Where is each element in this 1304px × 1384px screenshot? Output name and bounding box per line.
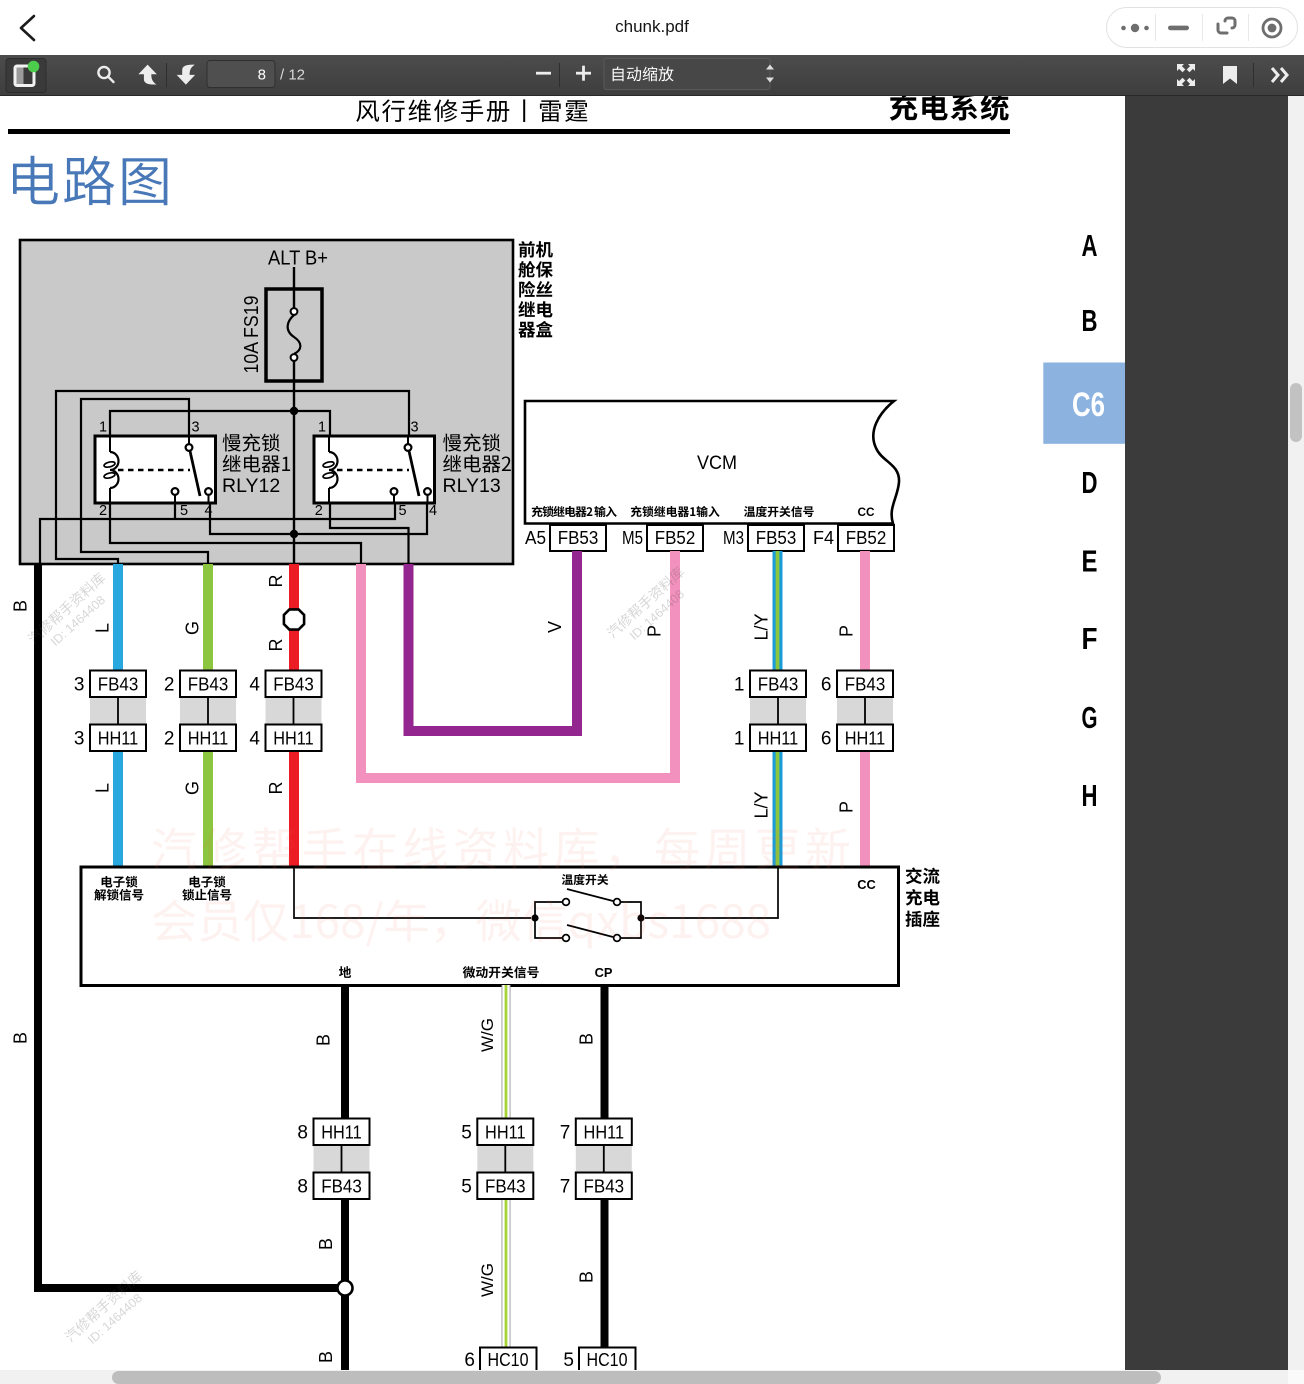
svg-text:FB43: FB43 bbox=[584, 1176, 625, 1197]
svg-text:E: E bbox=[1082, 544, 1098, 579]
svg-text:5: 5 bbox=[398, 503, 406, 519]
svg-text:L/Y: L/Y bbox=[751, 791, 771, 818]
svg-text:2: 2 bbox=[99, 503, 107, 519]
svg-text:D: D bbox=[1082, 465, 1098, 500]
svg-text:5: 5 bbox=[461, 1177, 472, 1198]
svg-text:CC: CC bbox=[857, 877, 875, 892]
svg-text:3: 3 bbox=[74, 729, 85, 750]
svg-text:10A FS19: 10A FS19 bbox=[241, 296, 263, 374]
svg-text:V: V bbox=[545, 621, 565, 633]
svg-text:VCM: VCM bbox=[697, 453, 737, 474]
svg-text:B: B bbox=[316, 1351, 336, 1363]
svg-text:CC: CC bbox=[857, 505, 875, 519]
svg-text:FB52: FB52 bbox=[846, 527, 887, 548]
svg-text:HH11: HH11 bbox=[98, 728, 139, 749]
svg-text:HC10: HC10 bbox=[488, 1349, 529, 1370]
svg-text:M5: M5 bbox=[622, 527, 643, 548]
svg-text:8: 8 bbox=[297, 1123, 308, 1144]
svg-text:L: L bbox=[92, 623, 112, 633]
svg-text:6: 6 bbox=[821, 675, 832, 696]
svg-text:4: 4 bbox=[204, 503, 212, 519]
svg-text:M3: M3 bbox=[723, 527, 744, 548]
svg-text:W/G: W/G bbox=[478, 1018, 497, 1052]
svg-text:1: 1 bbox=[99, 420, 107, 436]
svg-text:4: 4 bbox=[249, 675, 260, 696]
svg-text:5: 5 bbox=[461, 1123, 472, 1144]
svg-text:1: 1 bbox=[734, 729, 745, 750]
svg-text:HH11: HH11 bbox=[485, 1122, 526, 1143]
svg-text:R: R bbox=[266, 575, 286, 588]
svg-text:FB53: FB53 bbox=[558, 527, 599, 548]
svg-text:FB43: FB43 bbox=[758, 674, 799, 695]
svg-text:L/Y: L/Y bbox=[751, 613, 771, 640]
svg-text:F: F bbox=[1082, 621, 1098, 656]
svg-text:6: 6 bbox=[464, 1350, 475, 1370]
svg-text:FB43: FB43 bbox=[845, 674, 886, 695]
svg-text:W/G: W/G bbox=[478, 1263, 497, 1297]
svg-text:3: 3 bbox=[74, 675, 85, 696]
svg-text:ID: 1464408: ID: 1464408 bbox=[85, 1291, 145, 1347]
svg-text:FB43: FB43 bbox=[321, 1176, 362, 1197]
svg-text:FB43: FB43 bbox=[188, 674, 229, 695]
svg-text:B: B bbox=[10, 1032, 30, 1044]
svg-text:HH11: HH11 bbox=[845, 728, 886, 749]
svg-text:A: A bbox=[1082, 228, 1098, 263]
svg-text:RLY13: RLY13 bbox=[443, 475, 501, 497]
svg-text:FB43: FB43 bbox=[273, 674, 314, 695]
svg-text:2: 2 bbox=[164, 729, 175, 750]
svg-text:R: R bbox=[266, 639, 286, 652]
svg-text:2: 2 bbox=[164, 675, 175, 696]
svg-text:HH11: HH11 bbox=[321, 1122, 362, 1143]
svg-text:R: R bbox=[266, 782, 286, 795]
svg-text:B: B bbox=[576, 1271, 596, 1283]
svg-text:7: 7 bbox=[560, 1123, 571, 1144]
svg-text:FB53: FB53 bbox=[756, 527, 797, 548]
svg-text:4: 4 bbox=[249, 729, 260, 750]
svg-text:ALT B+: ALT B+ bbox=[268, 248, 328, 270]
svg-text:F4: F4 bbox=[813, 527, 834, 548]
svg-text:G: G bbox=[1082, 700, 1098, 735]
svg-text:B: B bbox=[10, 600, 30, 612]
svg-text:FB43: FB43 bbox=[98, 674, 139, 695]
svg-text:C6: C6 bbox=[1072, 386, 1105, 424]
svg-text:7: 7 bbox=[560, 1177, 571, 1198]
svg-text:HH11: HH11 bbox=[584, 1122, 625, 1143]
svg-text:B: B bbox=[576, 1033, 596, 1045]
svg-text:3: 3 bbox=[410, 420, 418, 436]
svg-text:P: P bbox=[836, 801, 856, 813]
svg-text:B: B bbox=[1082, 303, 1098, 338]
svg-text:H: H bbox=[1082, 778, 1098, 813]
svg-text:A5: A5 bbox=[525, 527, 546, 548]
svg-text:B: B bbox=[313, 1034, 333, 1046]
svg-text:HC10: HC10 bbox=[587, 1349, 628, 1370]
svg-text:1: 1 bbox=[734, 675, 745, 696]
svg-text:HH11: HH11 bbox=[188, 728, 229, 749]
svg-text:FB43: FB43 bbox=[485, 1176, 526, 1197]
svg-text:ID: 1464408: ID: 1464408 bbox=[48, 593, 108, 649]
svg-text:6: 6 bbox=[821, 729, 832, 750]
svg-text:8: 8 bbox=[297, 1177, 308, 1198]
svg-text:CP: CP bbox=[595, 965, 613, 980]
svg-text:G: G bbox=[182, 621, 202, 635]
svg-text:5: 5 bbox=[180, 503, 188, 519]
svg-text:B: B bbox=[316, 1238, 336, 1250]
svg-text:2: 2 bbox=[315, 503, 323, 519]
svg-text:4: 4 bbox=[429, 503, 437, 519]
svg-text:3: 3 bbox=[191, 420, 199, 436]
svg-text:1: 1 bbox=[318, 420, 326, 436]
svg-text:FB52: FB52 bbox=[655, 527, 696, 548]
svg-text:5: 5 bbox=[563, 1350, 574, 1370]
svg-text:L: L bbox=[92, 783, 112, 793]
svg-text:G: G bbox=[182, 781, 202, 795]
svg-text:HH11: HH11 bbox=[758, 728, 799, 749]
svg-text:HH11: HH11 bbox=[273, 728, 314, 749]
svg-text:RLY12: RLY12 bbox=[222, 475, 280, 497]
svg-text:P: P bbox=[836, 625, 856, 637]
